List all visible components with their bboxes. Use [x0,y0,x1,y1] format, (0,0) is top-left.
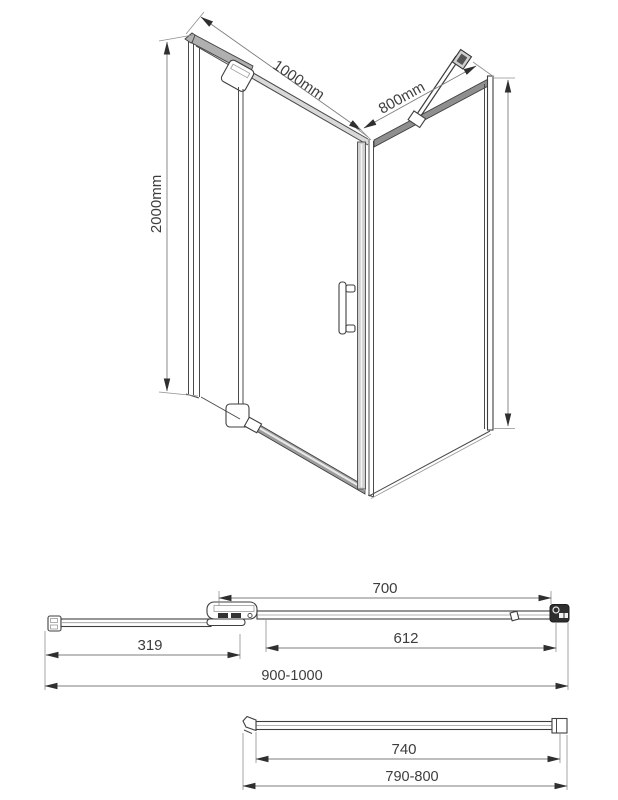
dim-label-door-unit-width: 700 [372,580,397,597]
dim-door-glass-width: 612 [266,620,556,652]
plan-door-bar [257,611,552,621]
dim-label-front-width: 1000mm [270,57,328,104]
dim-overall-width: 900-1000 [45,622,568,690]
plan-fixed-panel-bar [61,619,211,627]
dim-label-side-glass-width: 740 [391,741,416,758]
side-plan-left-bracket [243,717,256,731]
dim-side-glass-width: 740 [256,732,560,763]
bottom-hinge-block [226,404,262,433]
door-panel [201,87,366,494]
dim-label-height: 2000mm [148,175,165,233]
dim-label-side-width: 800mm [376,79,428,118]
rod-wall-clamp [452,49,471,69]
side-panel-plan-view: 740 790-800 [243,717,567,791]
door-wall-plan-view: 700 612 319 900-1000 [45,580,569,690]
dim-label-side-overall-width: 790-800 [385,769,438,785]
side-plan-right-block [552,719,567,734]
left-wall-profile [185,33,200,398]
corner-post [368,139,374,497]
plan-door-stopper [510,611,519,621]
dim-door-unit-width: 700 [219,580,551,606]
top-hinge-bracket [220,59,255,93]
dim-label-door-glass-width: 612 [393,630,418,647]
technical-drawing-canvas: 1000mm 800mm 2000mm [0,0,618,800]
dim-right-height-line [494,78,515,429]
door-corner-stile [358,142,366,489]
plan-right-wall-bracket [550,605,569,623]
dim-fixed-panel-width: 319 [45,631,240,690]
side-plan-bar [243,717,567,734]
door-bottom-rail [246,417,365,494]
side-right-profile [488,76,494,430]
side-panel [369,76,493,499]
shower-enclosure-diagram: 1000mm 800mm 2000mm [0,0,618,800]
dim-height: 2000mm [148,35,198,396]
plan-hinge-assembly [207,602,257,626]
dim-front-width: 1000mm [186,12,368,137]
door-handle [339,282,355,334]
perspective-view: 1000mm 800mm 2000mm [148,12,515,499]
plan-left-wall-bracket [48,616,61,631]
dim-label-fixed-panel-width: 319 [137,637,162,654]
door-hinge-stile [239,87,244,406]
dim-label-overall-width: 900-1000 [261,668,322,684]
